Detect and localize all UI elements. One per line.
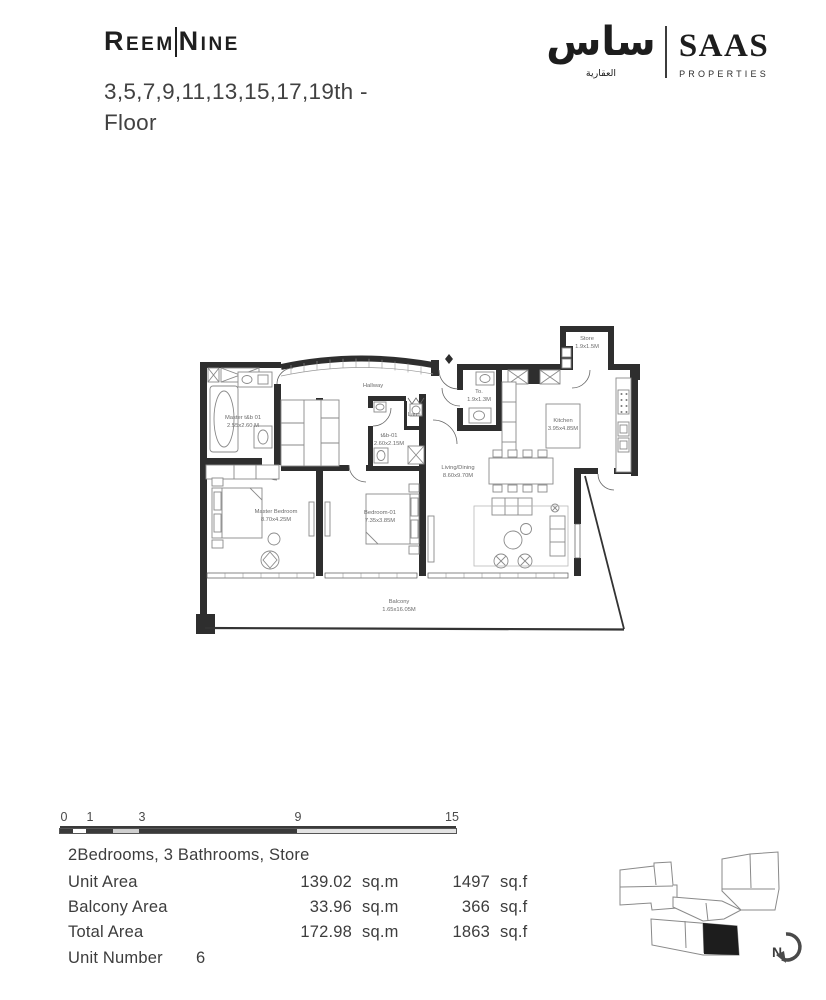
area-label: Total Area (68, 920, 278, 945)
area-metric-value: 172.98 (278, 920, 352, 945)
room-dims-living: 8.60x9.70M (443, 473, 473, 479)
key-plan: N (606, 842, 816, 990)
brochure-page: { "header": { "brand": { "part1": "Reem"… (0, 0, 826, 1000)
room-label-store: Store (580, 336, 594, 342)
room-label-master-bath: Master t&b 01 (225, 415, 261, 421)
area-row-total: Total Area 172.98 sq.m 1863 sq.f (68, 920, 538, 945)
room-label-master-bedroom: Master Bedroom (255, 509, 298, 515)
floor-plan: Master t&b 01 2.55x2.60 M Hallway t&b-01… (186, 318, 646, 650)
saas-arabic-subtitle: العقارية (545, 68, 657, 79)
area-imperial-unit: sq.f (490, 920, 535, 945)
brand-part2: Nine (179, 26, 240, 57)
area-imperial-unit: sq.f (490, 870, 535, 895)
unit-number-row: Unit Number 6 (68, 946, 538, 971)
saas-logo-arabic: ساس العقارية (545, 16, 657, 79)
highlighted-unit (703, 923, 739, 955)
room-label-living: Living/Dining (441, 465, 474, 471)
scale-label-0: 0 (61, 810, 68, 824)
area-label: Balcony Area (68, 895, 278, 920)
room-label-balcony: Balcony (389, 599, 410, 605)
unit-summary: 2Bedrooms, 3 Bathrooms, Store (68, 843, 538, 867)
room-dims-master-bedroom: 8.70x4.25M (261, 517, 291, 523)
balcony-bottom-edge (205, 628, 624, 630)
room-dims-balcony: 1.65x16.05M (382, 607, 416, 613)
area-row-unit: Unit Area 139.02 sq.m 1497 sq.f (68, 870, 538, 895)
entry-marker-icon (445, 354, 453, 364)
saas-wordmark: SAAS (676, 28, 772, 64)
unit-number-label: Unit Number (68, 946, 196, 971)
room-label-hallway: Hallway (363, 383, 383, 389)
area-imperial-value: 366 (412, 895, 490, 920)
area-metric-unit: sq.m (352, 920, 412, 945)
room-label-kitchen: Kitchen (553, 418, 572, 424)
brand-part1: Reem (104, 26, 175, 57)
room-label-toilet: To. (475, 389, 483, 395)
room-dims-toilet: 1.9x1.3M (467, 397, 491, 403)
scale-bar: 0 1 3 9 15 (60, 810, 460, 836)
unit-info: 2Bedrooms, 3 Bathrooms, Store Unit Area … (68, 843, 538, 971)
saas-properties-label: PROPERTIES (676, 69, 772, 79)
room-label-bedroom01: Bedroom-01 (364, 510, 396, 516)
balcony-right-edge (585, 476, 624, 629)
scale-label-1: 1 (87, 810, 94, 824)
scale-label-9: 9 (295, 810, 302, 824)
saas-logo-latin: SAAS PROPERTIES (676, 28, 772, 79)
area-metric-value: 33.96 (278, 895, 352, 920)
area-imperial-value: 1497 (412, 870, 490, 895)
fixtures (206, 348, 631, 569)
floor-title-line1: 3,5,7,9,11,13,15,17,19th - (104, 76, 368, 107)
key-plan-outline (620, 852, 779, 955)
floor-title: 3,5,7,9,11,13,15,17,19th - Floor (104, 76, 368, 138)
area-imperial-value: 1863 (412, 920, 490, 945)
north-arrow-icon: N (772, 934, 800, 963)
brand-logo: Reem Nine (104, 26, 240, 57)
room-dims-bedroom01: 7.35x3.85M (365, 518, 395, 524)
unit-number-value: 6 (196, 946, 205, 971)
room-label-tb01: t&b-01 (380, 433, 397, 439)
scale-label-15: 15 (445, 810, 459, 824)
area-imperial-unit: sq.f (490, 895, 535, 920)
scale-bar-topline (60, 826, 456, 828)
area-metric-unit: sq.m (352, 870, 412, 895)
room-dims-kitchen: 3.95x4.85M (548, 426, 578, 432)
area-label: Unit Area (68, 870, 278, 895)
area-metric-value: 139.02 (278, 870, 352, 895)
saas-logo-divider (665, 26, 667, 78)
floor-title-line2: Floor (104, 107, 368, 138)
saas-arabic-wordmark: ساس (545, 16, 657, 68)
room-dims-tb01: 2.60x2.15M (374, 441, 404, 447)
room-dims-store: 1.9x1.5M (575, 344, 599, 350)
brand-divider (175, 27, 177, 57)
scale-bar-body (60, 829, 456, 833)
room-dims-master-bath: 2.55x2.60 M (227, 423, 259, 429)
scale-label-3: 3 (139, 810, 146, 824)
area-row-balcony: Balcony Area 33.96 sq.m 366 sq.f (68, 895, 538, 920)
room-label-laundry: Laun. (408, 412, 423, 418)
area-metric-unit: sq.m (352, 895, 412, 920)
